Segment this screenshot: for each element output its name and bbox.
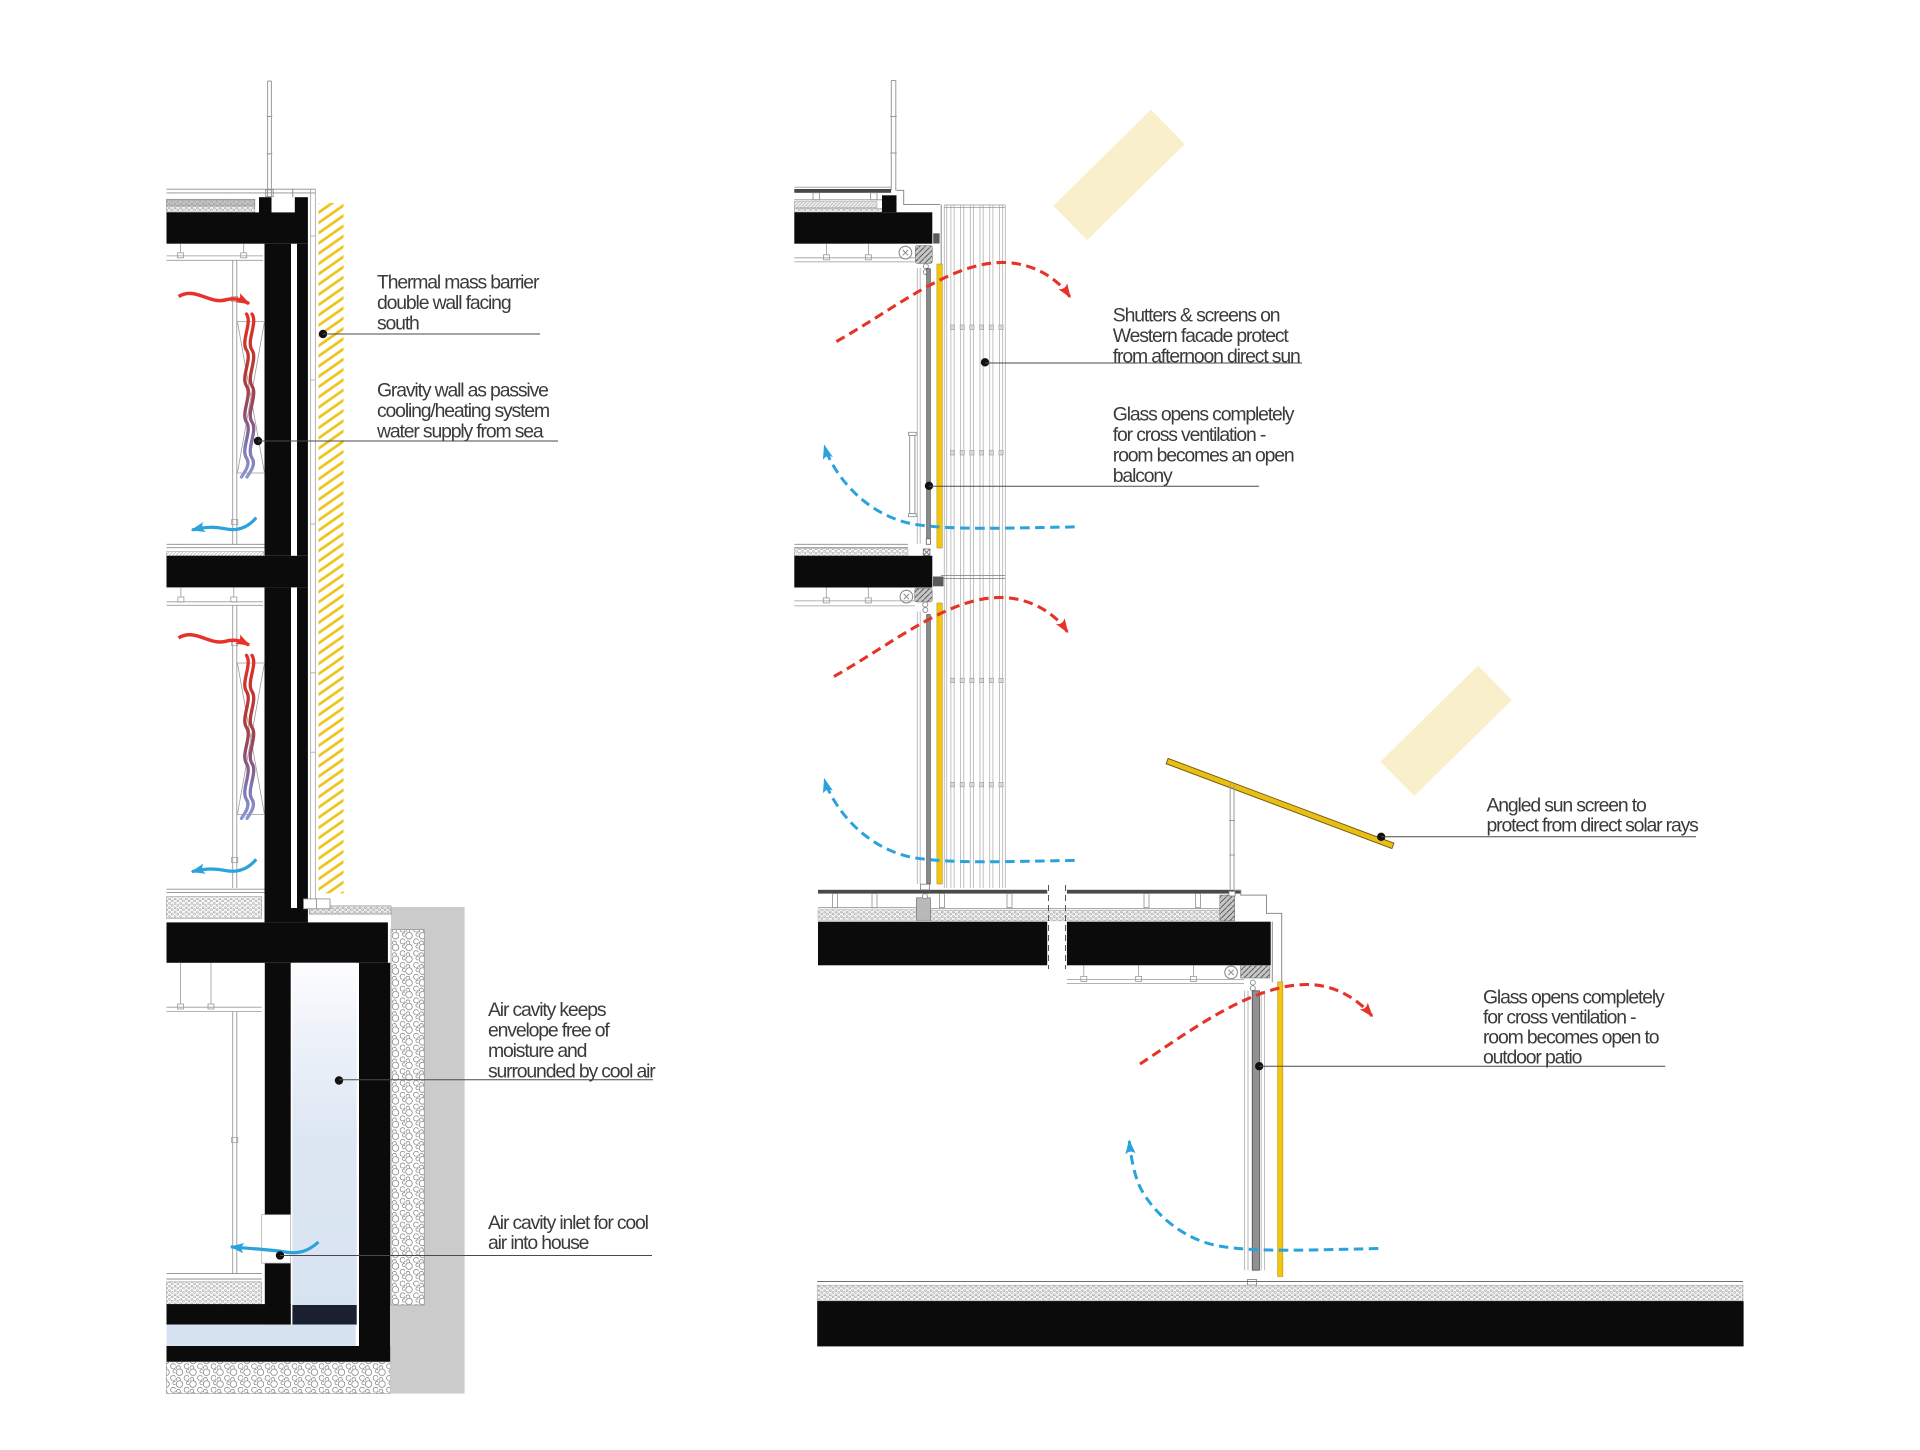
svg-text:double wall facing: double wall facing <box>377 292 511 314</box>
svg-text:Angled sun screen to: Angled sun screen to <box>1487 795 1647 817</box>
svg-text:Gravity wall as passive: Gravity wall as passive <box>377 380 548 402</box>
svg-text:outdoor patio: outdoor patio <box>1483 1047 1582 1069</box>
svg-text:Thermal mass barrier: Thermal mass barrier <box>377 272 540 294</box>
svg-text:from afternoon direct sun: from afternoon direct sun <box>1113 346 1300 368</box>
svg-text:surrounded by cool air: surrounded by cool air <box>488 1061 656 1083</box>
svg-text:cooling/heating system: cooling/heating system <box>377 400 549 422</box>
svg-text:south: south <box>377 313 419 335</box>
svg-text:Western facade protect: Western facade protect <box>1113 325 1290 347</box>
svg-text:Air cavity inlet for cool: Air cavity inlet for cool <box>488 1212 649 1234</box>
svg-text:Glass opens completely: Glass opens completely <box>1113 404 1295 426</box>
svg-text:room becomes an open: room becomes an open <box>1113 445 1294 467</box>
svg-text:water supply from sea: water supply from sea <box>376 421 544 443</box>
svg-text:envelope free of: envelope free of <box>488 1020 610 1042</box>
svg-text:balcony: balcony <box>1113 465 1173 487</box>
svg-text:for cross ventilation -: for cross ventilation - <box>1483 1007 1636 1029</box>
svg-text:Shutters & screens on: Shutters & screens on <box>1113 305 1280 327</box>
svg-text:air into house: air into house <box>488 1232 589 1254</box>
svg-text:for cross ventilation -: for cross ventilation - <box>1113 424 1266 446</box>
svg-text:Glass opens completely: Glass opens completely <box>1483 987 1665 1009</box>
svg-text:room becomes open to: room becomes open to <box>1483 1027 1659 1049</box>
svg-text:Air cavity keeps: Air cavity keeps <box>488 999 606 1021</box>
svg-text:moisture and: moisture and <box>488 1040 587 1062</box>
svg-text:protect from direct solar rays: protect from direct solar rays <box>1487 815 1699 837</box>
